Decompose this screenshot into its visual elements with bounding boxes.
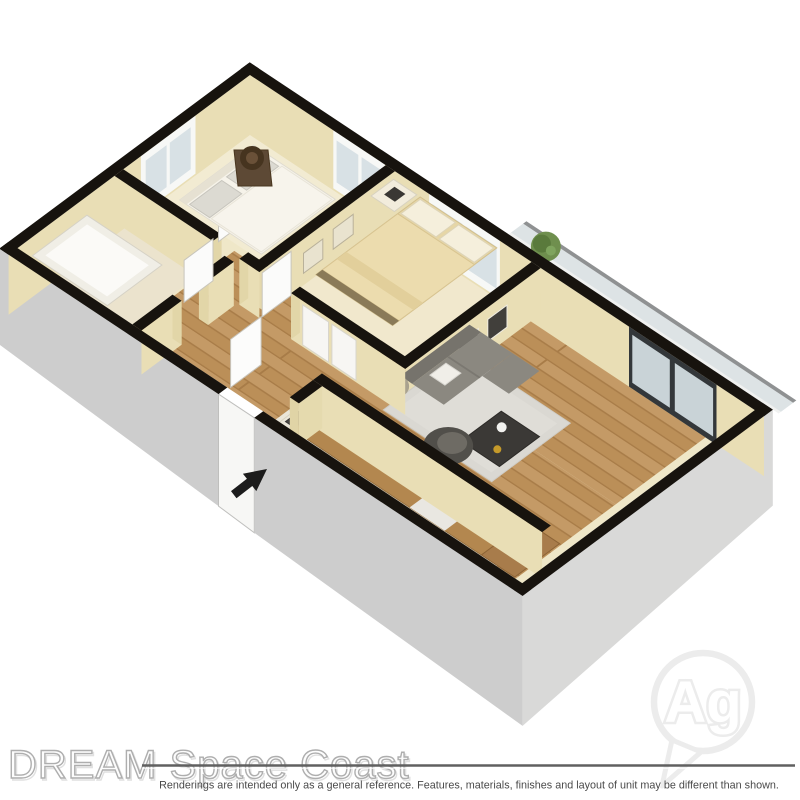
disclaimer: Renderings are intended only as a genera… <box>159 779 779 792</box>
logo-text: Ag <box>664 670 741 735</box>
table-decor <box>497 422 507 432</box>
armchair-seat <box>437 432 467 454</box>
lamp-icon <box>246 152 258 164</box>
plant-icon <box>546 246 556 256</box>
floorplan-svg: Ag DREAM Space Coast DREAM Space Coast R… <box>0 0 800 800</box>
floorplan-image: Ag DREAM Space Coast DREAM Space Coast R… <box>0 0 800 800</box>
disclaimer-text: Renderings are intended only as a genera… <box>159 779 779 791</box>
floorplan-render <box>0 62 796 726</box>
table-decor <box>493 445 501 453</box>
entry-door-face <box>219 394 255 533</box>
